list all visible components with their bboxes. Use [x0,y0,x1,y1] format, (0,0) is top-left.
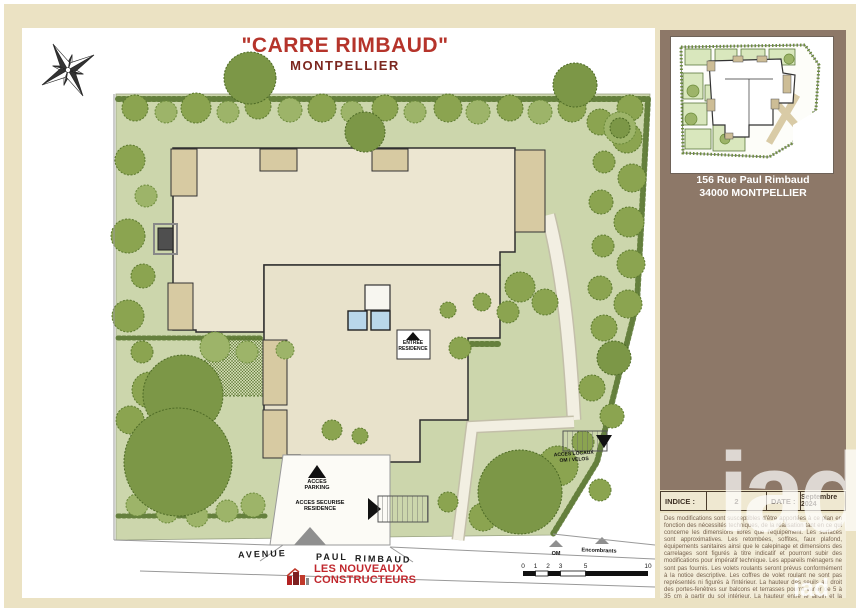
scale-tick: 1 [534,563,538,570]
date-value: Septembre 2024 [801,492,845,510]
residence-entrance [397,330,430,359]
scale-tick: 5 [584,563,588,570]
site-plan-drawing: 0 1 2 3 5 10 [22,28,655,598]
waste-point-icons [549,537,609,547]
address-line2: 34000 MONTPELLIER [660,187,846,199]
scale-tick: 3 [559,563,563,570]
logo-line2: CONSTRUCTEURS [314,575,416,586]
date-label: DATE : [767,492,801,510]
site-plan-page: 0 1 2 3 5 10 [0,0,860,612]
scale-tick: 10 [644,563,652,570]
indice-label: INDICE : [661,492,707,510]
location-minimap [670,36,834,174]
compass-rose-icon [27,29,109,111]
address-line1: 156 Rue Paul Rimbaud [660,174,846,186]
parking-access-area [270,455,390,545]
indice-value: 2 [707,492,767,510]
revision-table: INDICE : 2 DATE : Septembre 2024 [660,491,846,511]
plan-sheet: 0 1 2 3 5 10 [22,28,655,598]
buildings-icon [286,564,310,586]
scale-tick: 0 [521,563,525,570]
developer-logo: LES NOUVEAUX CONSTRUCTEURS [286,564,416,586]
minimap-drawing [673,39,831,169]
scale-tick: 2 [546,563,550,570]
legal-disclaimer: Des modifications sont susceptibles d'êt… [660,513,846,598]
scale-bar: 0 1 2 3 5 10 [521,563,652,576]
